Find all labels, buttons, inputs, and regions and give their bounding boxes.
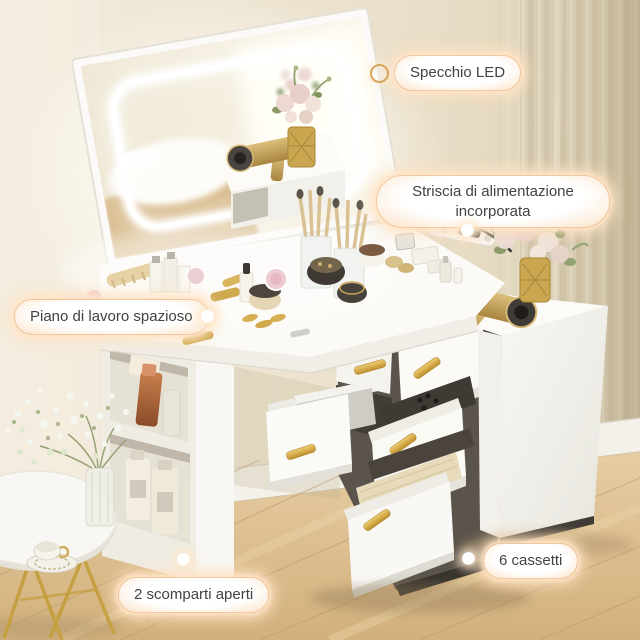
anchor-ring-icon — [370, 64, 389, 83]
anchor-dot-icon — [177, 553, 190, 566]
callout-drawers: 6 cassetti — [483, 543, 578, 579]
callout-led-mirror: Specchio LED — [394, 55, 521, 91]
product-photo: Specchio LED Striscia di alimentazione i… — [0, 0, 640, 640]
anchor-dot-icon — [461, 224, 474, 237]
glass-vase — [86, 468, 114, 526]
callout-shelves: 2 scomparti aperti — [118, 577, 269, 613]
anchor-dot-icon — [462, 552, 475, 565]
open-shelf-unit — [102, 332, 234, 590]
callout-power-strip: Striscia di alimentazione incorporata — [376, 175, 610, 228]
anchor-dot-icon — [201, 310, 214, 323]
callout-worktop: Piano di lavoro spazioso — [14, 299, 209, 335]
